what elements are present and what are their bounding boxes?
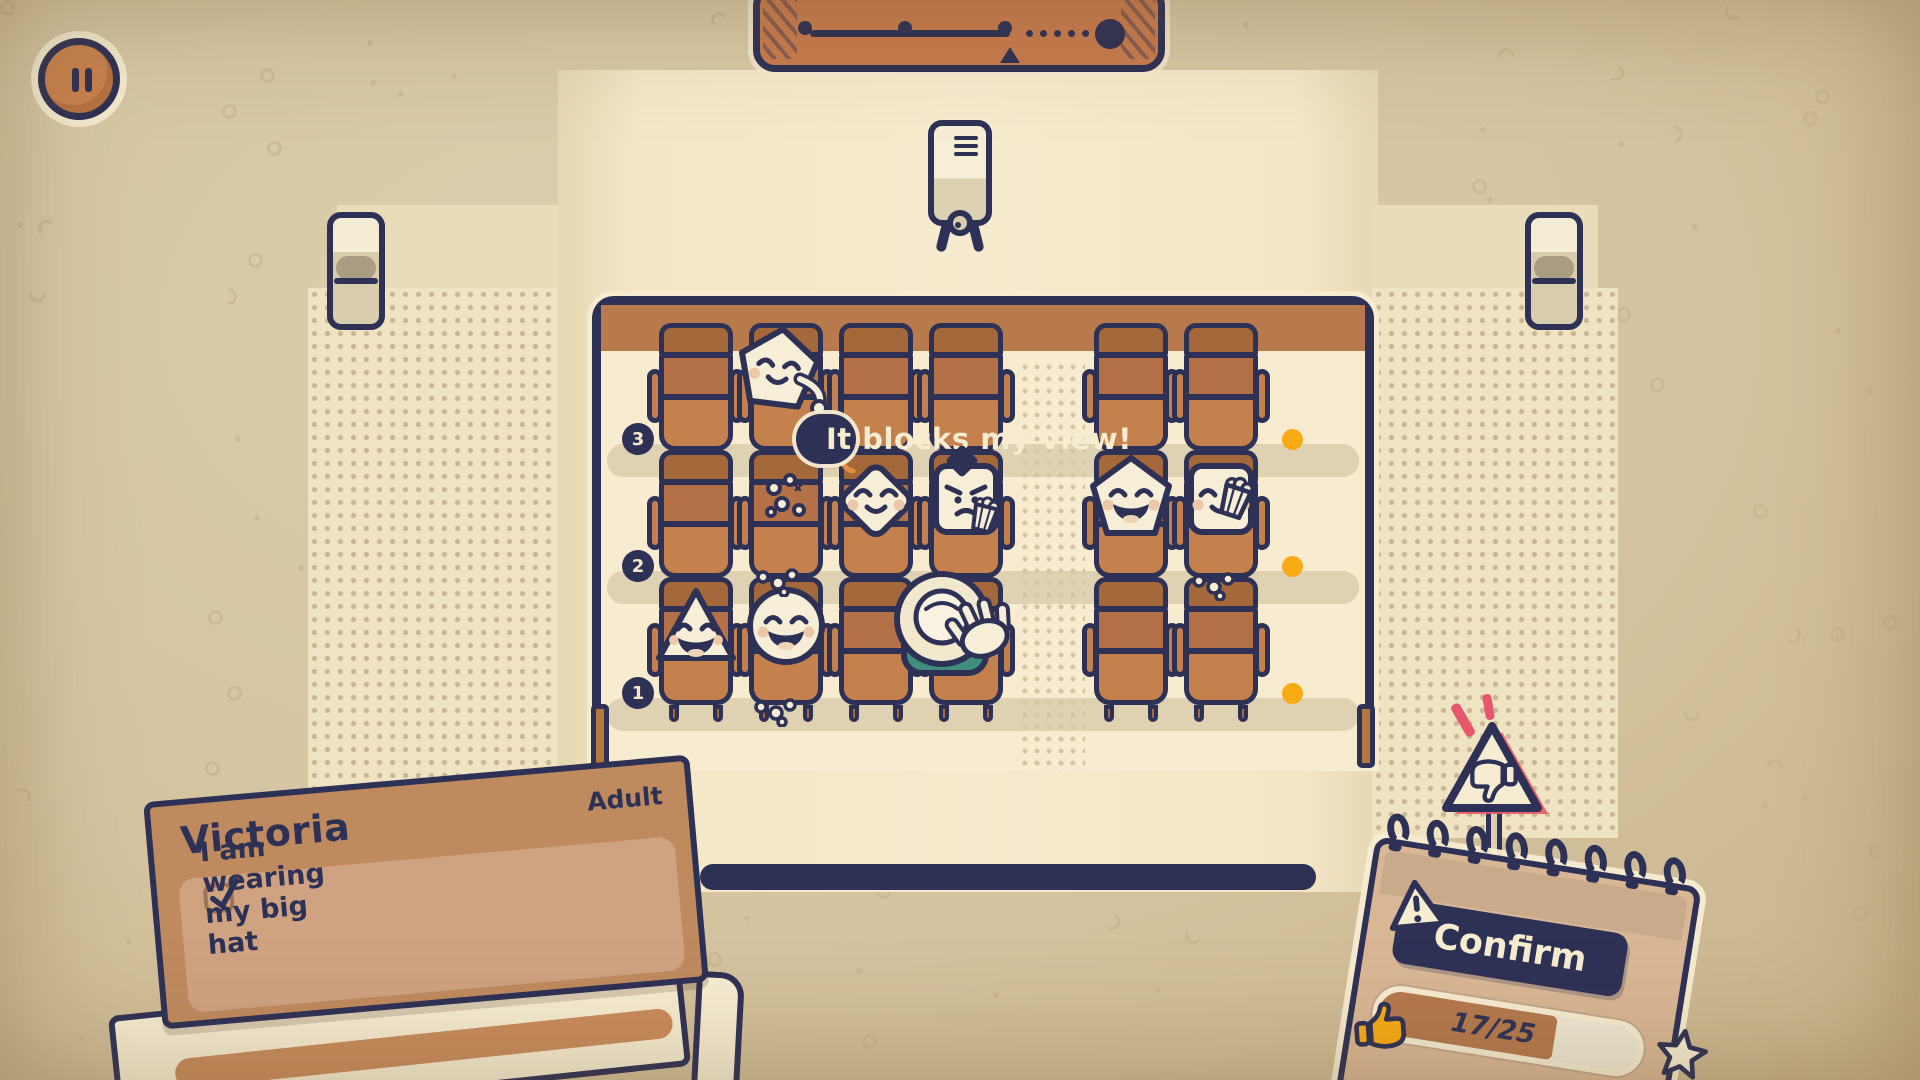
seat-cushion — [929, 353, 1003, 399]
speech-bubble-text: It blocks my view! — [826, 414, 1132, 464]
auditorium: 3 — [592, 296, 1374, 766]
confetti-piece — [1835, 328, 1841, 334]
confetti-piece — [125, 938, 131, 944]
seat-back — [659, 323, 733, 357]
confetti-piece — [992, 991, 1000, 999]
seat-back — [1094, 577, 1168, 611]
seat-armrest — [917, 496, 933, 550]
seat-back — [659, 577, 733, 611]
seat-cushion — [749, 607, 823, 653]
confetti-piece — [1243, 22, 1250, 29]
speaker-slot — [1532, 278, 1576, 284]
projector-vent — [954, 136, 978, 140]
confetti-piece — [264, 138, 285, 159]
seat-row3-left-1[interactable] — [656, 323, 736, 457]
seat-back — [1184, 577, 1258, 611]
seat-foot — [803, 705, 813, 722]
seat-foot — [1194, 705, 1204, 722]
seating-area: 3 — [601, 305, 1365, 766]
seat-cushion — [1094, 607, 1168, 653]
seat-row1-left-3[interactable] — [836, 577, 916, 711]
confetti-piece — [202, 758, 223, 779]
seat-armrest — [647, 496, 663, 550]
trait-item: I am wearing my big hat — [178, 877, 204, 901]
visitor-traits-panel: I am wearing my big hat — [178, 836, 686, 1013]
seat-armrest — [1254, 623, 1270, 677]
seat-row1-right-2[interactable] — [1181, 577, 1261, 711]
seat-front — [659, 522, 733, 578]
seat-armrest — [827, 496, 843, 550]
seat-front — [1094, 522, 1168, 578]
confetti-piece — [367, 40, 374, 47]
seat-cushion — [929, 607, 1003, 653]
seat-front — [659, 395, 733, 451]
seat-cushion — [749, 480, 823, 526]
confetti-piece — [705, 950, 723, 968]
row-status-dot-2 — [1282, 556, 1303, 577]
seat-row2-left-2[interactable] — [746, 450, 826, 584]
confetti-piece — [26, 282, 50, 306]
confetti-piece — [38, 220, 55, 237]
seat-row2-left-1[interactable] — [656, 450, 736, 584]
confetti-piece — [369, 79, 377, 87]
confetti-piece — [77, 1035, 85, 1043]
seat-foot — [669, 705, 679, 722]
seat-cushion — [1184, 480, 1258, 526]
confetti-piece — [1647, 374, 1668, 395]
seat-row1-left-2[interactable] — [746, 577, 826, 711]
confetti-piece — [247, 252, 263, 268]
confirm-button-label: Confirm — [1431, 917, 1590, 981]
visitor-card[interactable]: Victoria Adult I am wearing my big hat — [143, 755, 709, 1030]
speaker-grill — [1534, 256, 1574, 280]
confetti-piece — [1154, 986, 1161, 993]
confetti-piece — [1865, 839, 1889, 863]
confetti-piece — [217, 285, 241, 309]
confetti-piece — [860, 1032, 879, 1051]
seat-front — [839, 649, 913, 705]
seat-cushion — [659, 480, 733, 526]
pause-button[interactable] — [38, 38, 120, 120]
confetti-piece — [1184, 926, 1204, 946]
timeline-path-dot — [1082, 30, 1089, 37]
timeline-path-dot — [1040, 30, 1047, 37]
confetti-piece — [14, 788, 32, 806]
pause-icon — [85, 68, 92, 92]
seat-back — [839, 323, 913, 357]
seat-armrest — [999, 496, 1015, 550]
cinema-screen — [700, 864, 1316, 890]
confetti-piece — [226, 685, 243, 702]
confetti-piece — [1883, 615, 1899, 631]
seat-row2-right-2[interactable] — [1181, 450, 1261, 584]
confetti-piece — [1752, 503, 1769, 520]
seat-front — [1094, 649, 1168, 705]
alert-emphasis-mark — [1482, 693, 1495, 720]
seat-back — [659, 450, 733, 484]
confetti-piece — [1784, 626, 1802, 644]
confetti-piece — [297, 564, 305, 572]
seat-back — [1184, 450, 1258, 484]
seat-armrest — [647, 369, 663, 423]
confetti-piece — [208, 610, 224, 626]
seat-foot — [983, 705, 993, 722]
speaker-slot — [334, 278, 378, 284]
seat-row1-left-4[interactable] — [926, 577, 1006, 711]
speaker-left — [327, 212, 385, 330]
confetti-piece — [1662, 122, 1686, 146]
game-screen: 3 — [0, 0, 1920, 1080]
seat-armrest — [1254, 496, 1270, 550]
seat-back — [749, 323, 823, 357]
seat-cushion — [659, 607, 733, 653]
seat-row2-right-1[interactable] — [1091, 450, 1171, 584]
seat-cushion — [839, 607, 913, 653]
row-badge-3: 3 — [622, 423, 654, 455]
row-badge-2: 2 — [622, 550, 654, 582]
confetti-piece — [1617, 140, 1625, 148]
speech-bubble: It blocks my view! — [796, 414, 856, 464]
seat-back — [929, 577, 1003, 611]
panel-hatch-right — [1121, 0, 1155, 59]
timeline-path-dot — [1096, 30, 1103, 37]
seat-cushion — [1184, 607, 1258, 653]
seat-cushion — [1094, 353, 1168, 399]
seat-armrest — [737, 369, 753, 423]
seat-front — [839, 522, 913, 578]
seat-armrest — [647, 623, 663, 677]
seat-front — [1184, 395, 1258, 451]
confetti-piece — [17, 222, 23, 228]
seat-armrest — [1082, 496, 1098, 550]
projector-lens-icon — [947, 210, 973, 236]
confetti-piece — [254, 515, 261, 522]
trait-text: I am wearing my big hat — [198, 827, 331, 961]
confetti-piece — [1691, 223, 1699, 231]
seat-armrest — [999, 623, 1015, 677]
wall-post-left — [591, 704, 609, 768]
seat-front — [659, 649, 733, 705]
confetti-piece — [257, 65, 278, 86]
seat-foot — [759, 705, 769, 722]
seat-foot — [893, 705, 903, 722]
seat-front — [749, 649, 823, 705]
seat-back — [1094, 323, 1168, 357]
row-status-dot-1 — [1282, 683, 1303, 704]
seat-armrest — [1172, 496, 1188, 550]
seat-back — [929, 323, 1003, 357]
timeline-stop-dot — [998, 21, 1012, 35]
confetti-piece — [0, 0, 15, 15]
projector — [928, 120, 992, 226]
seat-front — [929, 649, 1003, 705]
seat-armrest — [917, 623, 933, 677]
row-status-dot-3 — [1282, 429, 1303, 450]
row-badge-1: 1 — [622, 677, 654, 709]
confetti-piece — [1479, 126, 1487, 134]
pause-icon — [72, 68, 79, 92]
seat-armrest — [827, 623, 843, 677]
level-progress-panel — [753, 0, 1165, 72]
confetti-piece — [1801, 794, 1809, 802]
confetti-piece — [1746, 978, 1754, 986]
speaker-right — [1525, 212, 1583, 330]
timeline-stop-dot — [798, 21, 812, 35]
seat-foot — [849, 705, 859, 722]
halftone-strip-left — [308, 288, 558, 838]
seat-front — [1184, 649, 1258, 705]
confetti-piece — [1762, 803, 1768, 809]
confetti-piece — [1800, 108, 1821, 129]
seat-cushion — [1094, 480, 1168, 526]
projector-vent — [954, 144, 978, 148]
seat-back — [839, 577, 913, 611]
timeline-path-dot — [1054, 30, 1061, 37]
confetti-piece — [450, 72, 458, 80]
confetti-piece — [234, 435, 242, 443]
timeline-path-dot — [1068, 30, 1075, 37]
confetti-piece — [1495, 45, 1519, 69]
projector-vent — [954, 152, 978, 156]
seat-armrest — [737, 623, 753, 677]
seat-cushion — [839, 480, 913, 526]
seat-row1-left-1[interactable] — [656, 577, 736, 711]
seat-cushion — [929, 480, 1003, 526]
confetti-piece — [1724, 2, 1742, 20]
confetti-piece — [1101, 911, 1122, 932]
seat-foot — [713, 705, 723, 722]
confetti-piece — [221, 103, 237, 119]
confetti-piece — [1469, 176, 1490, 197]
seat-cushion — [1184, 353, 1258, 399]
confetti-piece — [743, 914, 751, 922]
confetti-piece — [1606, 63, 1626, 83]
seat-armrest — [1254, 369, 1270, 423]
confetti-piece — [1815, 89, 1830, 104]
seat-armrest — [737, 496, 753, 550]
confetti-piece — [1849, 903, 1870, 924]
seat-front — [929, 522, 1003, 578]
timeline-stop-dot — [898, 21, 912, 35]
timeline-current-marker — [1000, 47, 1020, 63]
confetti-piece — [1487, 197, 1494, 204]
seat-foot — [1238, 705, 1248, 722]
confetti-piece — [1865, 387, 1873, 395]
seat-back — [1184, 323, 1258, 357]
seat-cushion — [839, 353, 913, 399]
confetti-piece — [1680, 701, 1704, 725]
seat-armrest — [1172, 623, 1188, 677]
confetti-piece — [1762, 755, 1786, 779]
visitor-age-label: Adult — [586, 781, 664, 816]
seat-row2-left-3[interactable] — [836, 450, 916, 584]
confetti-piece — [855, 967, 863, 975]
confetti-piece — [397, 90, 404, 97]
confetti-piece — [709, 10, 730, 31]
seat-foot — [1148, 705, 1158, 722]
timeline-path-dot — [1026, 30, 1033, 37]
seat-front — [749, 522, 823, 578]
seat-armrest — [1172, 369, 1188, 423]
seat-row1-right-1[interactable] — [1091, 577, 1171, 711]
confetti-piece — [1827, 624, 1848, 645]
seat-armrest — [1082, 623, 1098, 677]
seat-cushion — [749, 353, 823, 399]
seat-front — [1184, 522, 1258, 578]
wall-post-right — [1357, 704, 1375, 768]
seat-back — [749, 577, 823, 611]
seat-cushion — [659, 353, 733, 399]
seat-foot — [939, 705, 949, 722]
seat-foot — [1104, 705, 1114, 722]
panel-hatch-left — [763, 0, 797, 59]
speaker-grill — [336, 256, 376, 280]
seat-row3-right-2[interactable] — [1181, 323, 1261, 457]
card-stack-edge — [691, 971, 745, 1080]
